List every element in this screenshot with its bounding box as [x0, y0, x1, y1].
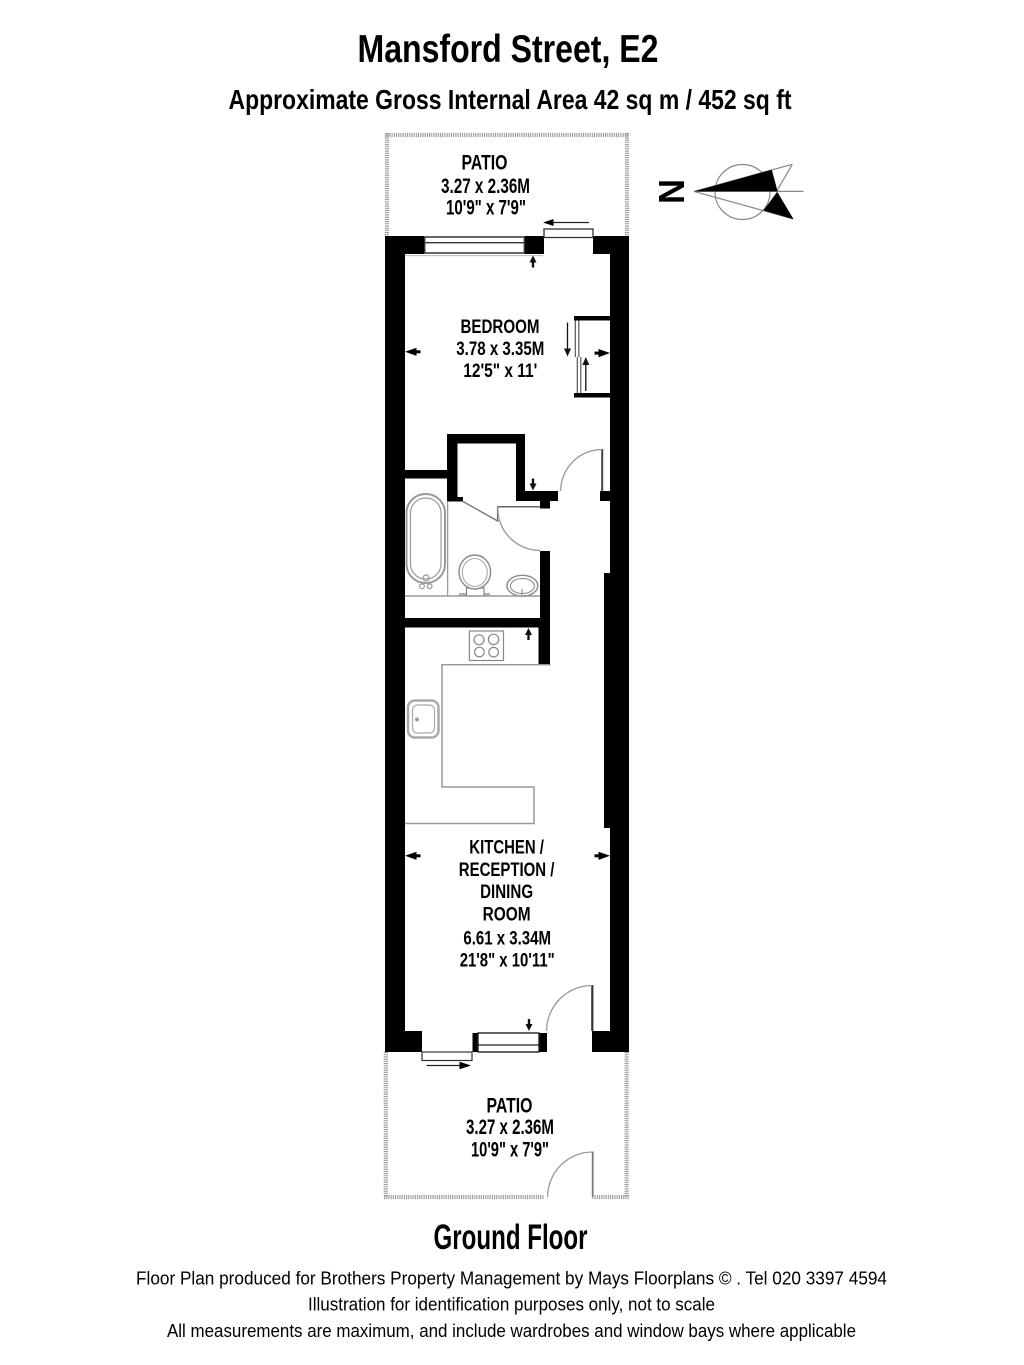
- svg-text:All measurements are maximum,: All measurements are maximum, and includ…: [167, 1320, 856, 1341]
- svg-text:Mansford Street, E2: Mansford Street, E2: [358, 28, 659, 71]
- svg-text:6.61 x 3.34M: 6.61 x 3.34M: [463, 929, 551, 950]
- svg-text:12'5" x 11': 12'5" x 11': [463, 361, 537, 382]
- svg-text:ROOM: ROOM: [483, 905, 531, 926]
- svg-text:21'8" x 10'11": 21'8" x 10'11": [460, 951, 555, 972]
- svg-text:BEDROOM: BEDROOM: [461, 317, 540, 338]
- svg-text:DINING: DINING: [480, 882, 533, 903]
- svg-text:PATIO: PATIO: [462, 151, 508, 175]
- svg-text:Approximate Gross Internal Are: Approximate Gross Internal Area 42 sq m …: [229, 84, 792, 115]
- svg-text:N: N: [651, 179, 692, 204]
- svg-text:PATIO: PATIO: [487, 1094, 533, 1118]
- svg-text:Ground Floor: Ground Floor: [434, 1217, 588, 1257]
- svg-text:3.27 x 2.36M: 3.27 x 2.36M: [466, 1115, 554, 1139]
- svg-text:3.78 x 3.35M: 3.78 x 3.35M: [456, 339, 544, 360]
- svg-text:RECEPTION /: RECEPTION /: [459, 860, 555, 881]
- svg-text:3.27 x 2.36M: 3.27 x 2.36M: [441, 174, 530, 198]
- svg-text:KITCHEN /: KITCHEN /: [469, 838, 544, 859]
- svg-text:Floor Plan produced for Brothe: Floor Plan produced for Brothers Propert…: [136, 1268, 887, 1289]
- svg-text:10'9" x 7'9": 10'9" x 7'9": [471, 1138, 549, 1162]
- svg-text:10'9" x 7'9": 10'9" x 7'9": [446, 196, 526, 220]
- svg-text:Illustration for identificatio: Illustration for identification purposes…: [308, 1294, 715, 1315]
